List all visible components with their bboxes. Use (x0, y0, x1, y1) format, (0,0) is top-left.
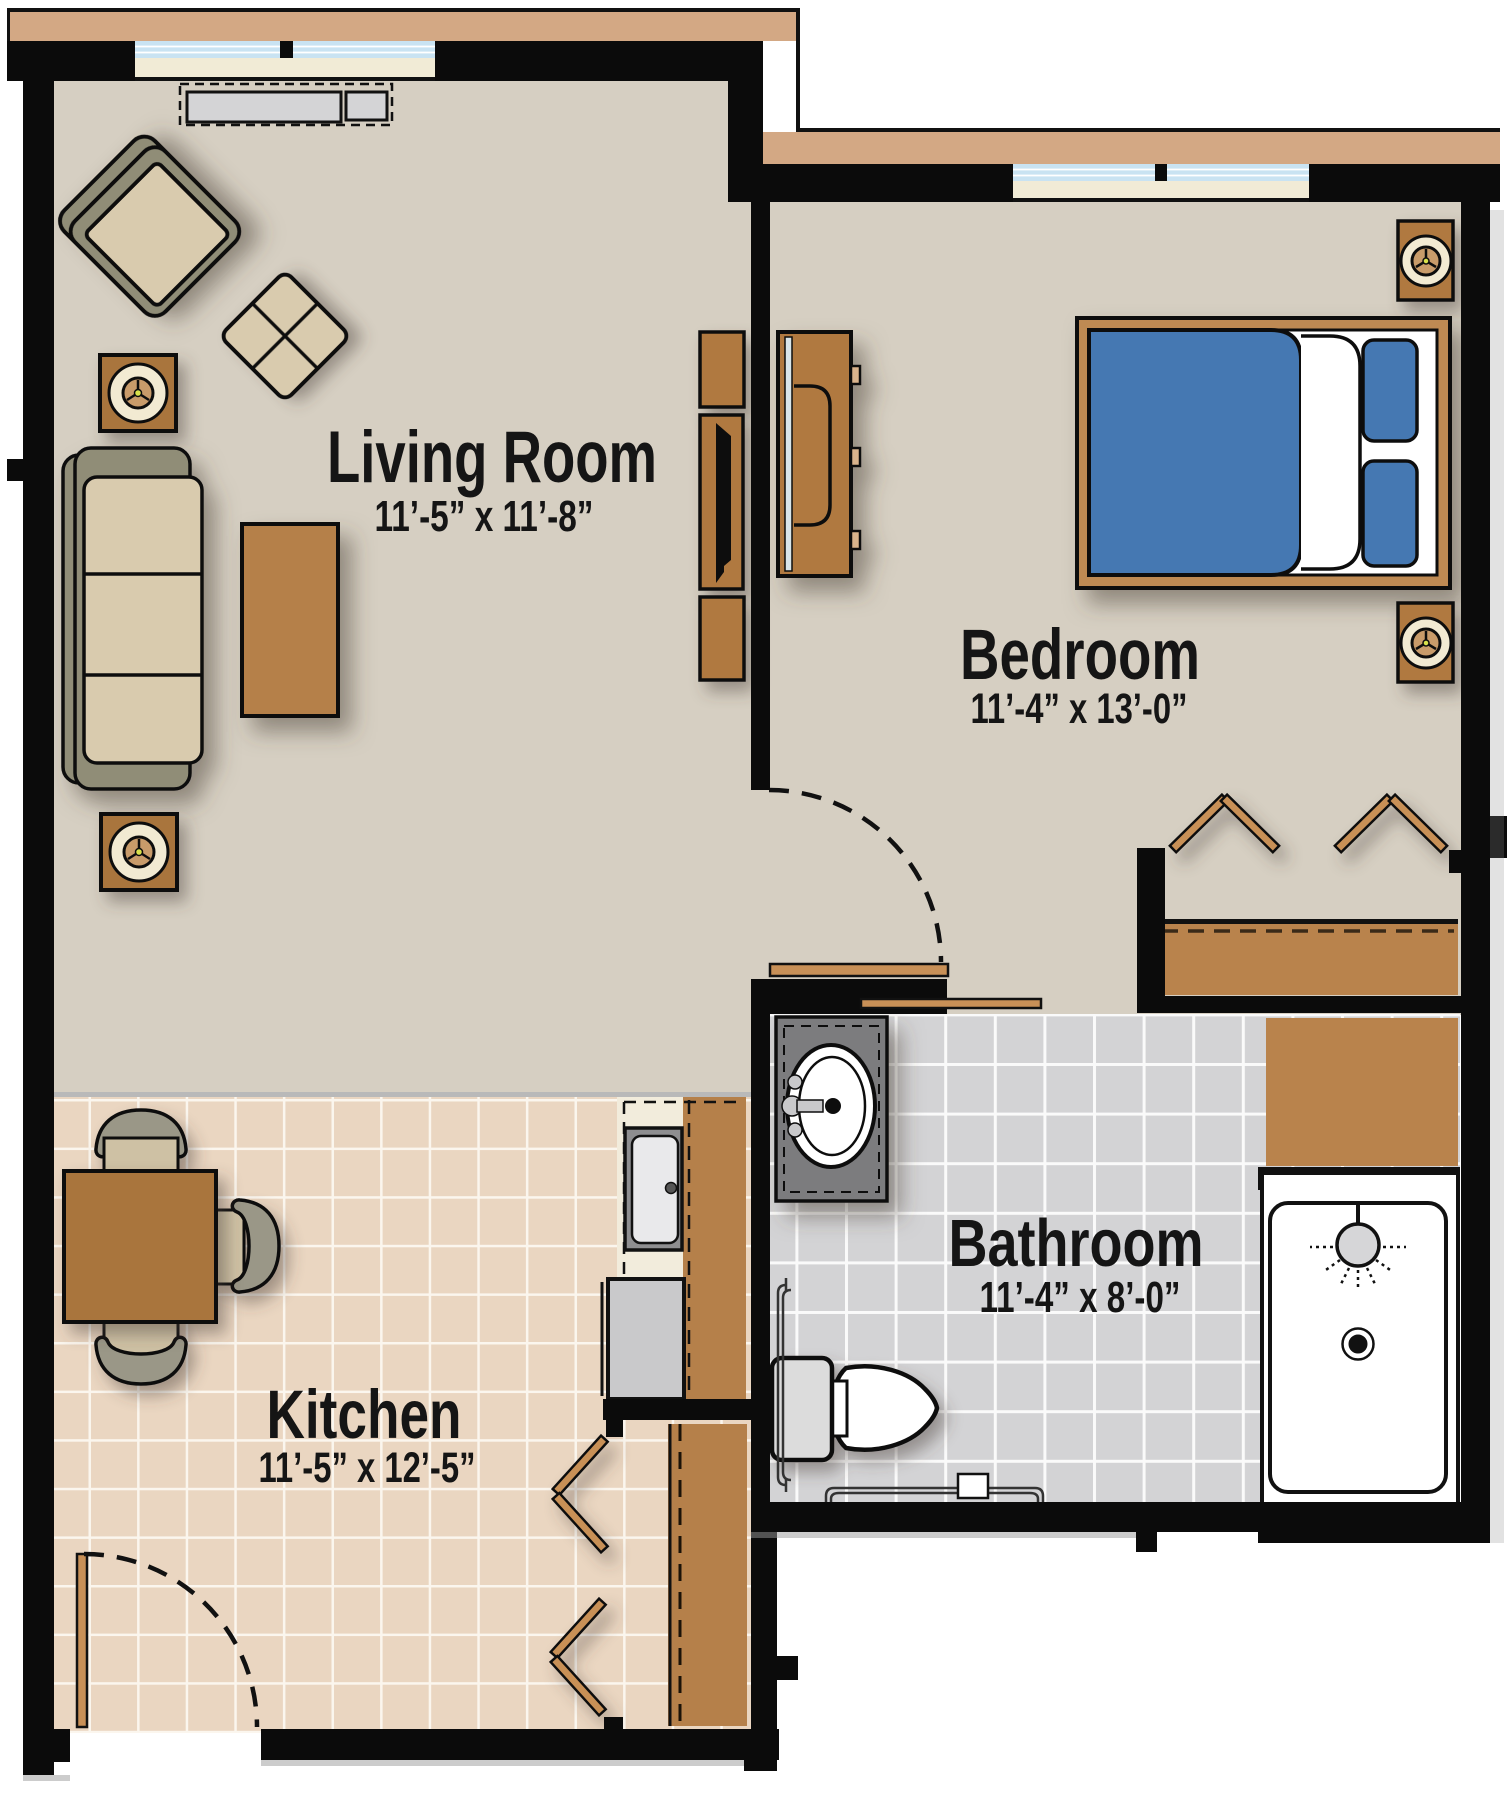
svg-text:11’-4” x 13’-0”: 11’-4” x 13’-0” (971, 685, 1188, 733)
svg-text:11’-5” x 11’-8”: 11’-5” x 11’-8” (375, 492, 594, 541)
svg-text:11’-4” x 8’-0”: 11’-4” x 8’-0” (980, 1273, 1181, 1322)
svg-text:Kitchen: Kitchen (267, 1376, 462, 1453)
svg-text:Living Room: Living Room (327, 417, 657, 498)
svg-text:Bedroom: Bedroom (960, 616, 1200, 695)
svg-text:Bathroom: Bathroom (949, 1206, 1204, 1281)
svg-text:11’-5” x 12’-5”: 11’-5” x 12’-5” (259, 1444, 476, 1492)
